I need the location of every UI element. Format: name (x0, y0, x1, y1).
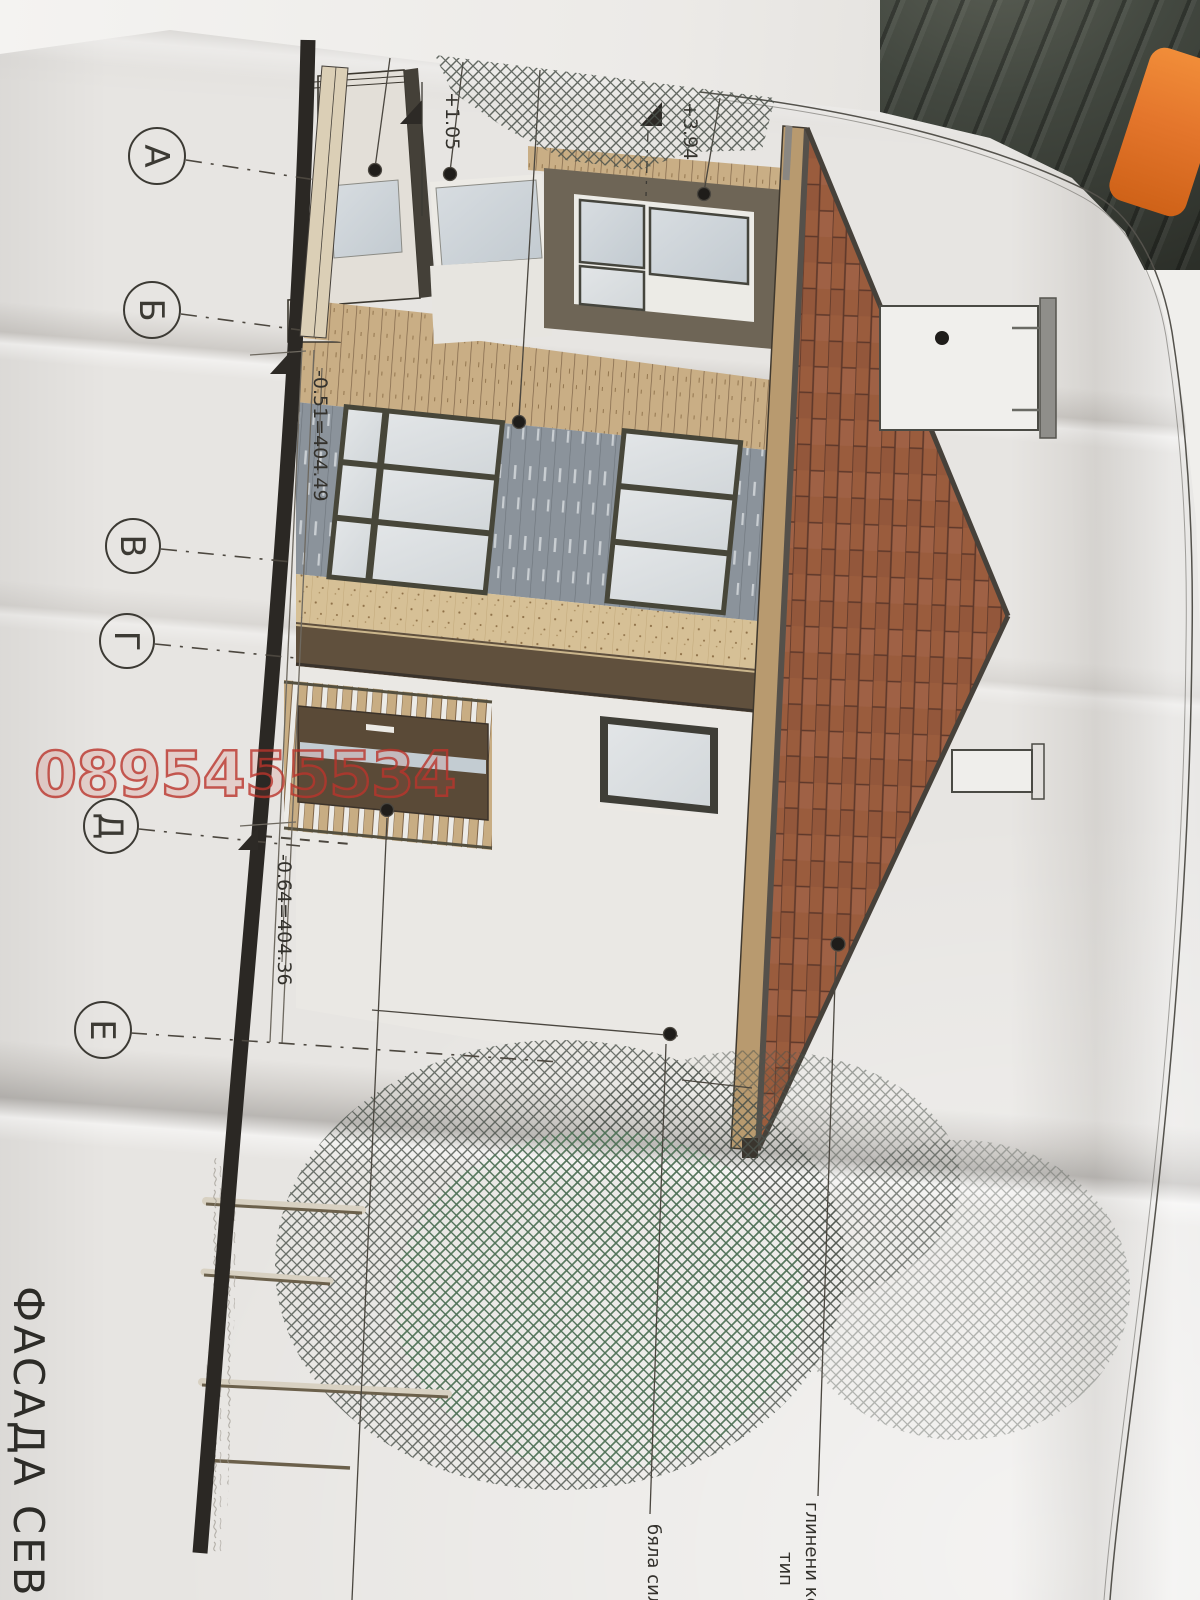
annotation-roof-material-2: тип (775, 1552, 796, 1586)
ground-window (598, 716, 720, 818)
drawing-title: ФАСАДА СЕВЕ (4, 1286, 53, 1600)
axis-label-3: В (112, 534, 152, 557)
chimney-1 (880, 298, 1056, 438)
axis-label-2: Б (131, 298, 171, 321)
axis-label-6: Е (82, 1019, 122, 1040)
ridge-cap (786, 126, 789, 180)
axis-markers (75, 128, 185, 1058)
window-group-right (604, 428, 743, 615)
annotation-roof-material-1: глинени кер (801, 1502, 822, 1600)
level-text-grade-upper: -0.51=404.49 (309, 370, 331, 502)
tree-foliage (275, 1040, 1130, 1490)
tree-foliage-top (435, 55, 775, 170)
chimney-cap (1040, 298, 1056, 438)
dormer-window-b (580, 266, 644, 310)
photo-of-facade-drawing: А Б В Г Д Е +1.05 +3.94 -0.51=404.49 -0.… (0, 0, 1200, 1600)
upper-left-window (436, 180, 542, 266)
leader-dot (935, 331, 949, 345)
chimney-2 (952, 744, 1044, 799)
dormer (528, 146, 784, 350)
window-group-left (326, 404, 505, 595)
dormer-window-a (580, 200, 644, 268)
balcony-glass (330, 180, 402, 258)
dormer-window-c (650, 208, 748, 284)
axis-label-1: А (136, 144, 176, 167)
annotation-wall-material: бяла сил (643, 1524, 664, 1600)
watermark-phone: 0895455534 (34, 738, 455, 811)
level-text-grade-lower: -0.64=404.36 (273, 854, 295, 986)
axis-label-5: Д (90, 813, 130, 840)
axis-label-4: Г (106, 631, 146, 652)
level-text-balcony: +1.05 (441, 92, 463, 150)
